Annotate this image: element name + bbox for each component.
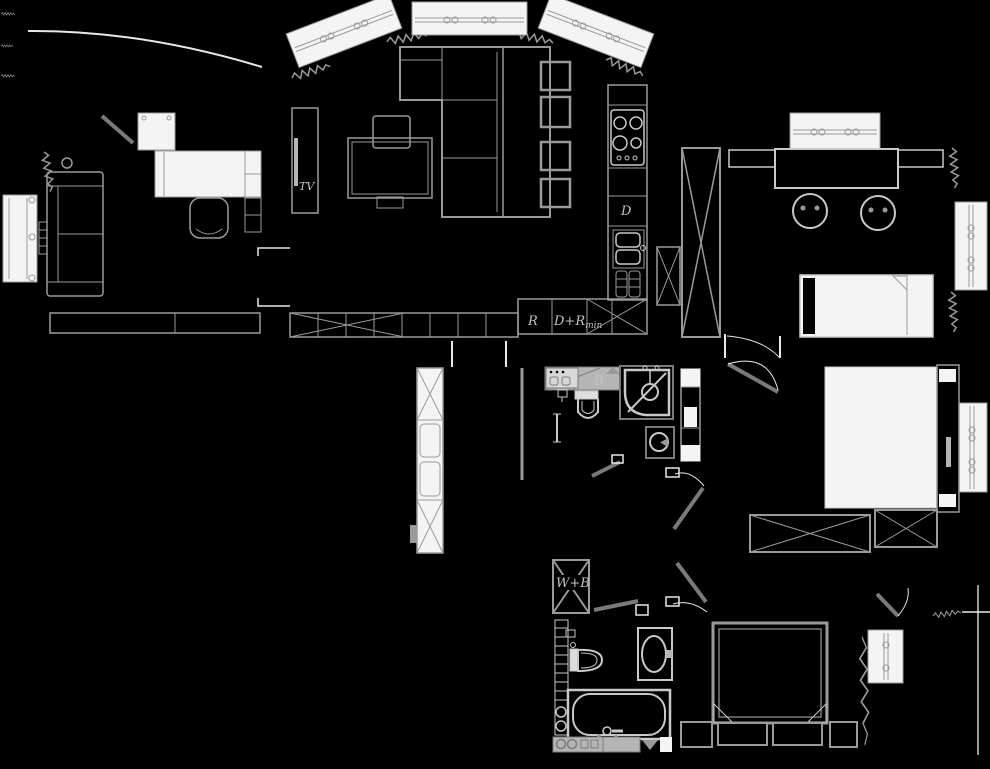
vanity-counter: B bbox=[545, 367, 620, 390]
utility-closet: W+B bbox=[553, 560, 590, 613]
shelf-box bbox=[541, 179, 570, 207]
footboard-unit bbox=[773, 723, 822, 745]
floorplan-page: TV bbox=[0, 0, 990, 769]
cooktop bbox=[611, 110, 644, 165]
master-headboard bbox=[937, 365, 959, 512]
kids-chair bbox=[793, 194, 827, 228]
burner bbox=[631, 138, 641, 148]
wall-break-symbol bbox=[933, 609, 961, 618]
kids-bed bbox=[800, 275, 933, 337]
knob bbox=[617, 156, 621, 160]
master-wardrobe bbox=[750, 515, 870, 552]
fridge-label: R bbox=[527, 314, 538, 329]
wall-break-symbol bbox=[1, 75, 15, 77]
toilet bbox=[575, 391, 598, 418]
tv-label: TV bbox=[299, 180, 315, 193]
living-table bbox=[348, 138, 432, 198]
bathtub bbox=[568, 690, 670, 739]
bay-window-right bbox=[538, 0, 654, 68]
door-jamb bbox=[666, 468, 679, 477]
footboard-unit bbox=[718, 723, 767, 745]
master-bed bbox=[825, 367, 937, 508]
nightstand bbox=[939, 494, 956, 507]
wall-break-symbol bbox=[949, 148, 959, 188]
shelf-box bbox=[541, 142, 570, 170]
washing-machine bbox=[646, 427, 674, 458]
flush-button bbox=[571, 643, 576, 648]
shelf-box bbox=[541, 62, 570, 90]
shelf-box bbox=[541, 97, 570, 127]
washbasin bbox=[638, 628, 672, 680]
room-kids bbox=[729, 149, 943, 337]
dishwasher-label: D bbox=[620, 204, 632, 219]
knob bbox=[633, 156, 637, 160]
faucet bbox=[666, 650, 672, 658]
door-swing-arc bbox=[673, 603, 707, 612]
shower-cabin bbox=[620, 366, 673, 419]
corridor-wardrobe bbox=[410, 368, 443, 553]
door-leaf bbox=[592, 462, 620, 476]
door-leaf bbox=[102, 116, 133, 143]
master-wardrobe bbox=[875, 510, 937, 547]
storage-row-left bbox=[290, 313, 518, 337]
wardrobe-handle bbox=[410, 525, 417, 543]
low-cabinet bbox=[50, 313, 260, 333]
door-leaf bbox=[594, 601, 638, 610]
dish-rack bbox=[616, 271, 640, 297]
nightstand bbox=[681, 722, 712, 747]
door-leaf bbox=[728, 364, 778, 392]
floorplan-svg: TV bbox=[0, 0, 990, 769]
bath-tall-cabinet bbox=[681, 369, 700, 461]
dressing-table bbox=[138, 113, 175, 150]
bathroom-main bbox=[553, 620, 672, 752]
tv-cabinet: TV bbox=[292, 108, 318, 213]
basin-label: B bbox=[593, 374, 604, 389]
nightstand bbox=[830, 722, 857, 747]
daybed bbox=[155, 151, 245, 197]
burner bbox=[630, 117, 642, 129]
counter-end bbox=[660, 737, 672, 752]
kids-room-top-window bbox=[790, 113, 880, 152]
door-jamb bbox=[666, 597, 679, 606]
door-swing-arc bbox=[727, 336, 779, 357]
kitchen-sink bbox=[613, 230, 646, 268]
wall-break-symbol bbox=[1, 13, 15, 15]
toilet bbox=[566, 630, 602, 671]
door-leaf bbox=[674, 488, 703, 529]
triangle-mark bbox=[642, 740, 658, 750]
room-top-left-bedroom: TV bbox=[62, 108, 318, 238]
appliance-label: D+Rmin bbox=[553, 314, 603, 331]
chair bbox=[190, 198, 228, 238]
wall-break-symbol bbox=[1, 45, 13, 47]
room-living: R D+Rmin bbox=[290, 47, 647, 337]
faucet bbox=[641, 246, 646, 251]
tv-panel bbox=[294, 138, 298, 186]
corner-sofa bbox=[400, 47, 550, 217]
bed-headboard bbox=[803, 278, 815, 334]
washer-boiler-label: W+B bbox=[556, 576, 590, 591]
wall-shelves bbox=[541, 62, 570, 207]
wall-break-symbol bbox=[948, 292, 958, 332]
door-jamb bbox=[636, 605, 648, 615]
bottom-right-window bbox=[868, 630, 903, 683]
sink-bowl bbox=[616, 233, 640, 247]
kids-room-right-window bbox=[955, 202, 987, 290]
hallway-storage bbox=[410, 148, 720, 553]
paper-holder bbox=[558, 390, 567, 402]
master-right-window bbox=[958, 403, 987, 492]
kids-desk bbox=[729, 149, 943, 188]
balcony-arc bbox=[28, 31, 262, 67]
nightstand bbox=[939, 369, 956, 382]
small-closet bbox=[657, 247, 680, 305]
sink-bowl bbox=[616, 250, 640, 264]
chair-back-line bbox=[196, 229, 222, 234]
room-master bbox=[728, 361, 959, 552]
bath-counter bbox=[553, 737, 640, 752]
burner bbox=[614, 117, 626, 129]
kitchen-run: D bbox=[608, 85, 647, 300]
dining-chair bbox=[373, 116, 410, 148]
windows bbox=[3, 0, 987, 683]
bay-window-left bbox=[286, 0, 402, 68]
wall-opening-cap bbox=[258, 298, 290, 306]
door-leaf bbox=[677, 563, 706, 602]
floor-lamp bbox=[62, 158, 72, 168]
kids-chair bbox=[861, 196, 895, 230]
door-swing-arc bbox=[898, 588, 908, 616]
small-sofa bbox=[47, 172, 103, 296]
storage-row-right: R D+Rmin bbox=[518, 299, 647, 334]
knob bbox=[625, 156, 629, 160]
wall-opening-cap bbox=[258, 248, 290, 256]
double-bed bbox=[713, 623, 827, 723]
bay-window-center bbox=[412, 2, 527, 35]
bathroom-small: B bbox=[545, 366, 700, 461]
towel-bar bbox=[553, 414, 561, 442]
wall-break-symbol bbox=[291, 62, 331, 81]
door-leaf bbox=[877, 594, 898, 616]
tall-wardrobe bbox=[682, 148, 720, 337]
burner bbox=[613, 136, 627, 150]
room-bottom-bedroom bbox=[681, 623, 857, 747]
left-wall-window bbox=[3, 195, 37, 282]
